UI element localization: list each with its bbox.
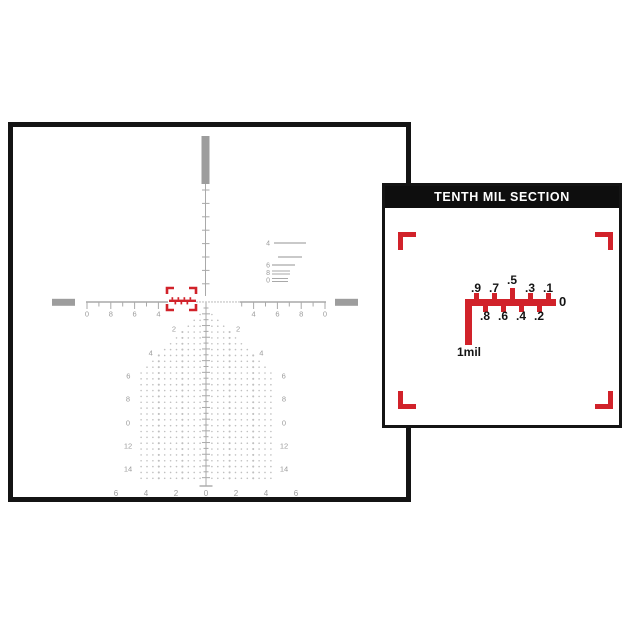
reticle-diagram: 4680086446802244668800121214146420246 — [13, 127, 406, 497]
one-mil-vertical-bar — [465, 299, 472, 345]
svg-text:2: 2 — [172, 325, 176, 334]
svg-text:8: 8 — [266, 270, 270, 277]
svg-text:4: 4 — [264, 489, 269, 497]
tenth-label: .5 — [507, 274, 517, 286]
svg-text:0: 0 — [204, 489, 209, 497]
highlight-bracket — [167, 288, 196, 310]
reticle-line-gray-segment — [428, 299, 467, 306]
svg-text:6: 6 — [114, 489, 119, 497]
tenth-label: .9 — [471, 282, 481, 294]
svg-text:12: 12 — [280, 442, 288, 451]
elevation-scale — [202, 184, 210, 296]
svg-text:14: 14 — [280, 465, 288, 474]
svg-text:6: 6 — [282, 372, 286, 381]
svg-text:2: 2 — [234, 489, 239, 497]
svg-text:8: 8 — [299, 310, 303, 319]
svg-text:4: 4 — [259, 349, 263, 358]
reticle-panel: 4680086446802244668800121214146420246 — [8, 122, 411, 502]
panel-title-bar: TENTH MIL SECTION — [385, 186, 619, 208]
tenth-label: .1 — [543, 282, 553, 294]
lower-elevation-line — [200, 302, 213, 486]
svg-text:2: 2 — [236, 325, 240, 334]
svg-text:4: 4 — [252, 310, 256, 319]
svg-text:12: 12 — [124, 442, 132, 451]
svg-text:2: 2 — [174, 489, 179, 497]
tenth-label: .4 — [516, 310, 526, 322]
ranging-ladder: 4680 — [266, 241, 306, 285]
svg-text:6: 6 — [294, 489, 299, 497]
tick-up — [510, 288, 515, 299]
bottom-labels: 6420246 — [114, 489, 299, 497]
svg-text:6: 6 — [275, 310, 279, 319]
svg-text:0: 0 — [85, 310, 89, 319]
frame-corner-icon — [398, 232, 416, 250]
half-mil-gray-tick — [428, 306, 430, 316]
frame-corner-icon — [595, 391, 613, 409]
one-mil-label: 1mil — [457, 346, 481, 358]
windage-scale: 08644680 — [52, 299, 358, 319]
svg-text:8: 8 — [109, 310, 113, 319]
tenth-label: .3 — [525, 282, 535, 294]
tenth-label: .7 — [489, 282, 499, 294]
tenth-label: .8 — [480, 310, 490, 322]
frame-corner-icon — [595, 232, 613, 250]
svg-text:6: 6 — [266, 263, 270, 270]
svg-text:6: 6 — [133, 310, 137, 319]
svg-text:6: 6 — [126, 372, 130, 381]
svg-text:14: 14 — [124, 465, 132, 474]
svg-text:0: 0 — [266, 278, 270, 285]
frame-corner-icon — [398, 391, 416, 409]
tenth-mil-panel: TENTH MIL SECTION .9 .7 .5 .3 .1 .8 .6 .… — [382, 183, 622, 428]
svg-text:4: 4 — [149, 349, 153, 358]
tenth-label: .2 — [534, 310, 544, 322]
page: 4680086446802244668800121214146420246 TE… — [0, 0, 630, 630]
elevation-post — [202, 136, 210, 184]
panel-title: TENTH MIL SECTION — [434, 190, 570, 204]
svg-text:8: 8 — [282, 395, 286, 404]
svg-text:0: 0 — [282, 419, 286, 428]
svg-text:4: 4 — [144, 489, 149, 497]
svg-text:4: 4 — [266, 241, 270, 248]
tenth-mil-highlight — [169, 297, 196, 304]
reticle-line-continuation — [568, 300, 576, 305]
svg-text:8: 8 — [126, 395, 130, 404]
zero-label: 0 — [559, 295, 566, 308]
tenth-mil-bar — [467, 299, 556, 306]
svg-text:0: 0 — [323, 310, 327, 319]
tenth-label: .6 — [498, 310, 508, 322]
svg-text:4: 4 — [156, 310, 160, 319]
svg-text:0: 0 — [126, 419, 130, 428]
